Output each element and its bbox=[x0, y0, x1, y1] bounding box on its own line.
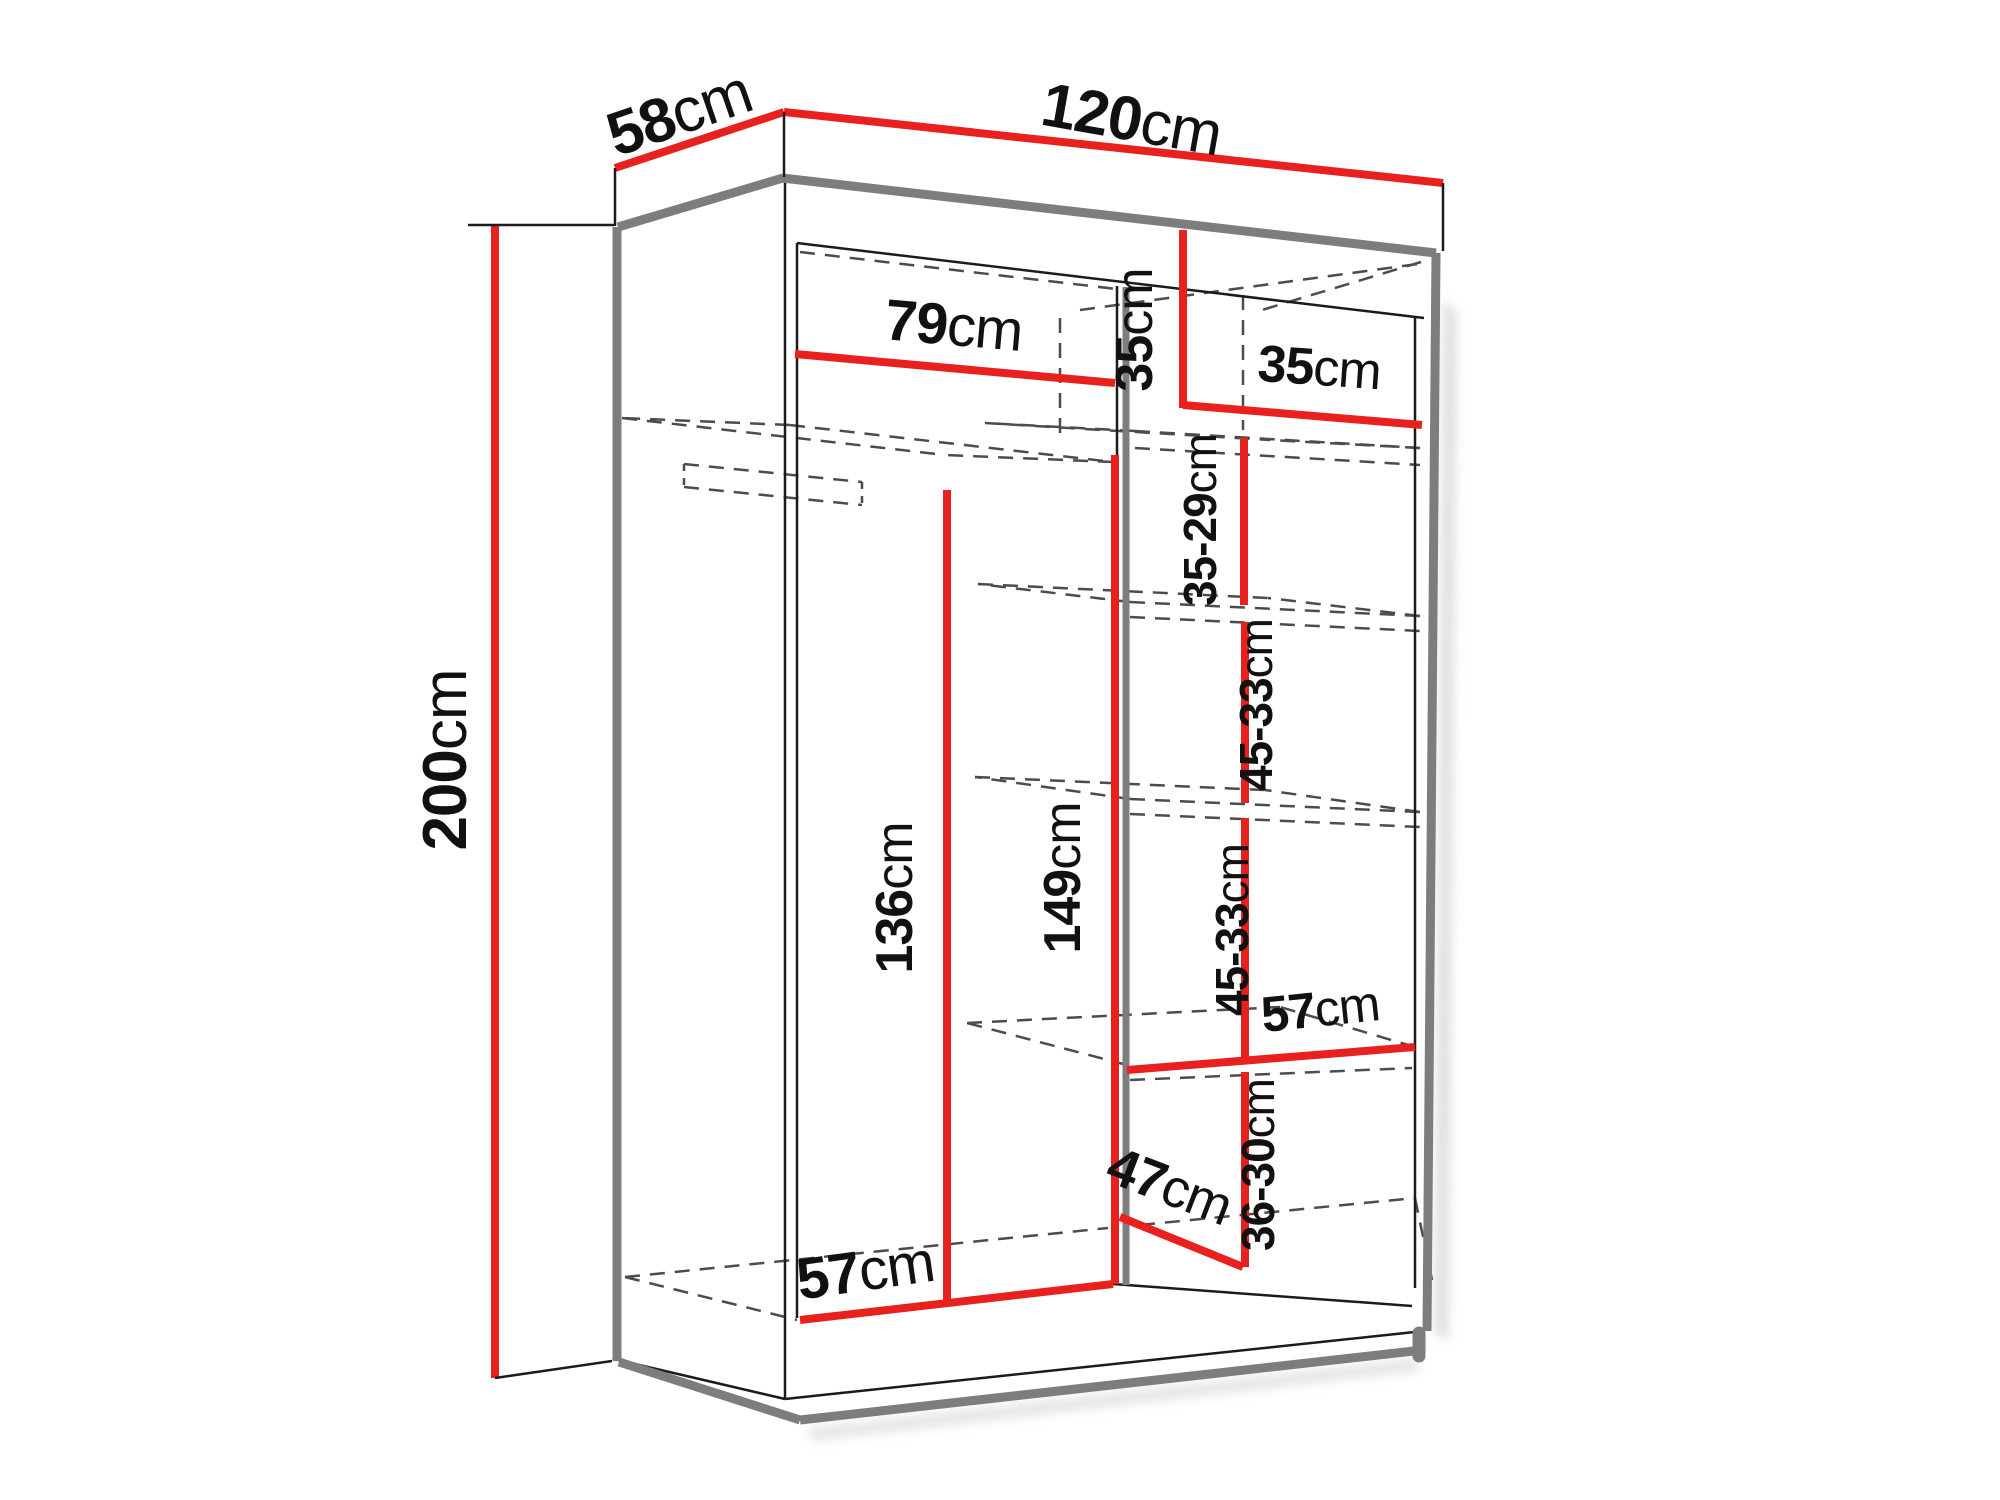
shelf-d-left-edge bbox=[967, 1023, 1127, 1065]
dim-label-height: 200cm bbox=[411, 669, 480, 850]
dim-line-bottom-depth-47 bbox=[1120, 1217, 1243, 1267]
dim-label-left-width: 79cm bbox=[882, 287, 1025, 364]
plinth-bottom-edge bbox=[800, 1351, 1414, 1420]
dim-line-top-right-width-35 bbox=[1183, 405, 1422, 425]
wardrobe-dimension-diagram: 58cm 120cm 200cm 79cm 35cm 35cm 35-29cm … bbox=[0, 0, 2000, 1500]
dim-line-shelf-width-57 bbox=[1127, 1047, 1415, 1070]
shelf-c-front-edge-2 bbox=[1130, 814, 1420, 827]
dimension-labels: 58cm 120cm 200cm 79cm 35cm 35cm 35-29cm … bbox=[411, 57, 1383, 1313]
floor-left-depth-edge bbox=[625, 1277, 797, 1320]
top-front-edge bbox=[782, 178, 1436, 253]
hanging-rod-top bbox=[684, 464, 862, 482]
top-shelf-right-edge bbox=[945, 455, 1113, 462]
hanging-rod-bottom bbox=[684, 487, 862, 505]
dim-label-partition-height: 149cm bbox=[1034, 802, 1092, 953]
back-top-edge-left bbox=[800, 252, 1125, 290]
shelf-c-front-edge bbox=[1130, 799, 1420, 812]
dim-label-top-right-height: 35cm bbox=[1106, 268, 1164, 391]
plinth-left-edge bbox=[619, 1362, 800, 1420]
bottom-shadow bbox=[808, 1358, 1420, 1441]
dim-label-gap2: 45-33cm bbox=[1230, 619, 1282, 791]
tick-height-bottom bbox=[495, 1361, 612, 1378]
right-wall-top-depth-edge bbox=[1262, 262, 1421, 310]
diagram-canvas: 58cm 120cm 200cm 79cm 35cm 35cm 35-29cm … bbox=[0, 0, 2000, 1500]
dim-label-bottom-right-height: 36-30cm bbox=[1232, 1079, 1284, 1251]
right-front-edge bbox=[1427, 253, 1436, 1331]
dim-label-width: 120cm bbox=[1036, 70, 1226, 169]
dim-label-bottom-width: 57cm bbox=[793, 1229, 939, 1313]
dim-line-left-width-79 bbox=[795, 354, 1115, 383]
dim-label-depth: 58cm bbox=[598, 57, 760, 170]
dim-label-top-right-width: 35cm bbox=[1256, 335, 1383, 401]
dim-label-rod-height: 136cm bbox=[866, 822, 924, 973]
floor-front-edge-right bbox=[1113, 1284, 1412, 1306]
dim-label-gap1: 35-29cm bbox=[1174, 434, 1226, 606]
top-left-edge bbox=[618, 178, 783, 227]
dim-label-gap3: 45-33cm bbox=[1206, 844, 1258, 1016]
